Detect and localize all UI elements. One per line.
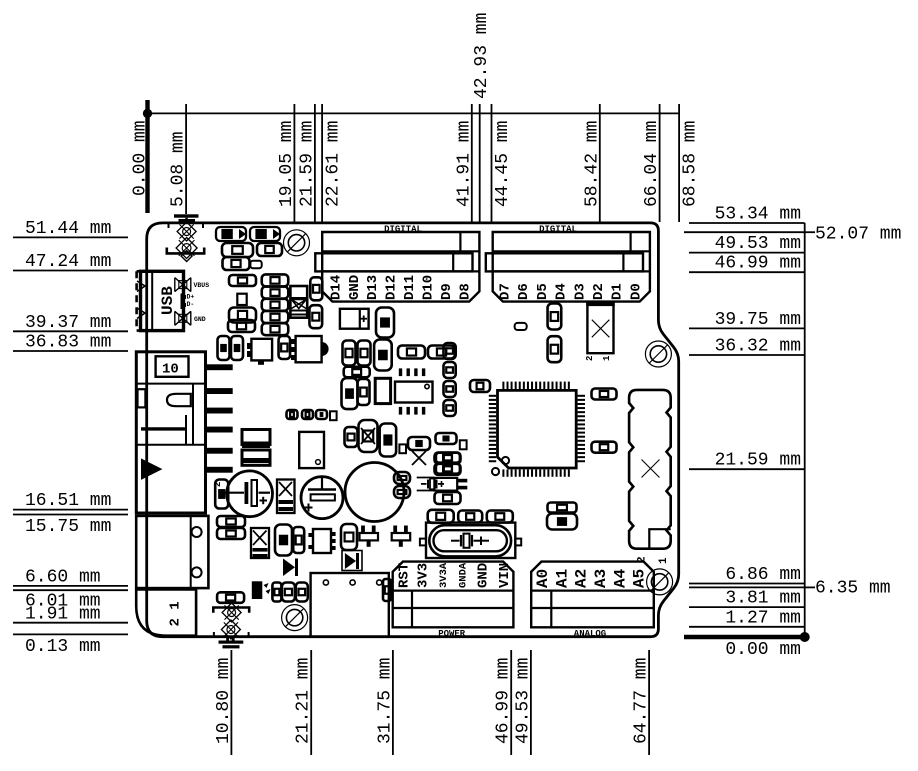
svg-text:0.00 mm: 0.00 mm [725,640,801,660]
svg-text:D11: D11 [402,275,418,300]
svg-text:1.91 mm: 1.91 mm [25,605,101,625]
svg-text:GND: GND [476,563,492,588]
svg-text:A3: A3 [592,569,610,588]
svg-text:68.58 mm: 68.58 mm [681,121,701,207]
svg-text:A4: A4 [611,568,629,588]
svg-text:D9: D9 [439,283,455,300]
svg-text:44.45 mm: 44.45 mm [493,121,513,207]
svg-text:0.13 mm: 0.13 mm [25,637,101,657]
svg-text:D3: D3 [572,283,588,300]
svg-text:A5: A5 [631,569,649,588]
svg-text:D-: D- [187,301,195,308]
svg-text:0.00 mm: 0.00 mm [131,120,151,196]
svg-text:D5: D5 [535,283,551,300]
svg-text:D6: D6 [516,283,532,300]
svg-text:D8: D8 [457,283,473,300]
svg-text:52.07 mm: 52.07 mm [815,225,901,245]
svg-text:39.37 mm: 39.37 mm [25,313,111,333]
svg-text:10: 10 [162,362,179,378]
svg-text:64.77 mm: 64.77 mm [632,658,652,744]
svg-text:46.99 mm: 46.99 mm [494,658,514,744]
svg-text:GND: GND [347,275,363,300]
svg-text:D10: D10 [421,275,437,300]
svg-text:36.32 mm: 36.32 mm [715,337,801,357]
svg-text:D13: D13 [365,275,381,300]
svg-text:21.59 mm: 21.59 mm [297,121,317,207]
svg-text:49.53 mm: 49.53 mm [513,658,533,744]
svg-text:53.34 mm: 53.34 mm [715,205,801,225]
svg-text:6.86 mm: 6.86 mm [725,565,801,585]
svg-text:D7: D7 [498,283,514,300]
svg-text:21.59 mm: 21.59 mm [715,451,801,471]
svg-text:A1: A1 [553,569,571,588]
svg-text:16.51 mm: 16.51 mm [25,491,111,511]
svg-text:3.81 mm: 3.81 mm [725,589,801,609]
svg-text:GND: GND [194,316,206,323]
svg-text:2 1: 2 1 [168,601,184,626]
svg-text:1: 1 [602,355,612,361]
svg-text:31.75 mm: 31.75 mm [375,658,395,744]
svg-text:D2: D2 [591,283,607,300]
svg-text:49.53 mm: 49.53 mm [715,234,801,254]
svg-text:D14: D14 [328,275,344,300]
svg-text:22.61 mm: 22.61 mm [324,121,344,207]
svg-text:6.60 mm: 6.60 mm [25,567,101,587]
svg-text:41.91 mm: 41.91 mm [454,121,474,207]
svg-text:1.27 mm: 1.27 mm [725,608,801,628]
svg-text:66.04 mm: 66.04 mm [642,121,662,207]
svg-text:47.24 mm: 47.24 mm [25,252,111,272]
svg-text:39.75 mm: 39.75 mm [715,310,801,330]
svg-text:D1: D1 [610,283,626,300]
svg-text:1: 1 [658,557,670,564]
svg-text:58.42 mm: 58.42 mm [582,121,602,207]
svg-text:D+: D+ [187,294,195,301]
svg-text:5.08 mm: 5.08 mm [169,131,189,207]
svg-text:VBUS: VBUS [194,282,210,289]
svg-text:D12: D12 [384,275,400,300]
svg-text:3V3: 3V3 [416,563,432,588]
svg-text:POWER: POWER [438,629,466,639]
svg-text:VIN: VIN [497,563,513,588]
svg-text:A2: A2 [573,569,591,588]
svg-text:A0: A0 [534,569,552,588]
svg-text:10.80 mm: 10.80 mm [214,658,234,744]
svg-text:2: 2 [213,482,223,487]
svg-text:2: 2 [637,556,649,563]
svg-text:D0: D0 [628,283,644,300]
svg-text:6.35 mm: 6.35 mm [815,579,891,599]
svg-text:ANALOG: ANALOG [574,629,606,639]
svg-text:21.21 mm: 21.21 mm [294,658,314,744]
svg-text:19.05 mm: 19.05 mm [277,121,297,207]
svg-text:GNDA: GNDA [457,562,469,588]
svg-text:2: 2 [585,356,595,361]
svg-text:D4: D4 [554,283,570,300]
svg-text:46.99 mm: 46.99 mm [715,254,801,274]
svg-text:15.75 mm: 15.75 mm [25,517,111,537]
svg-text:42.93 mm: 42.93 mm [472,13,492,99]
svg-text:36.83 mm: 36.83 mm [25,333,111,353]
svg-text:RST: RST [396,563,412,588]
svg-text:51.44 mm: 51.44 mm [25,219,111,239]
svg-text:3V3A: 3V3A [438,562,450,588]
